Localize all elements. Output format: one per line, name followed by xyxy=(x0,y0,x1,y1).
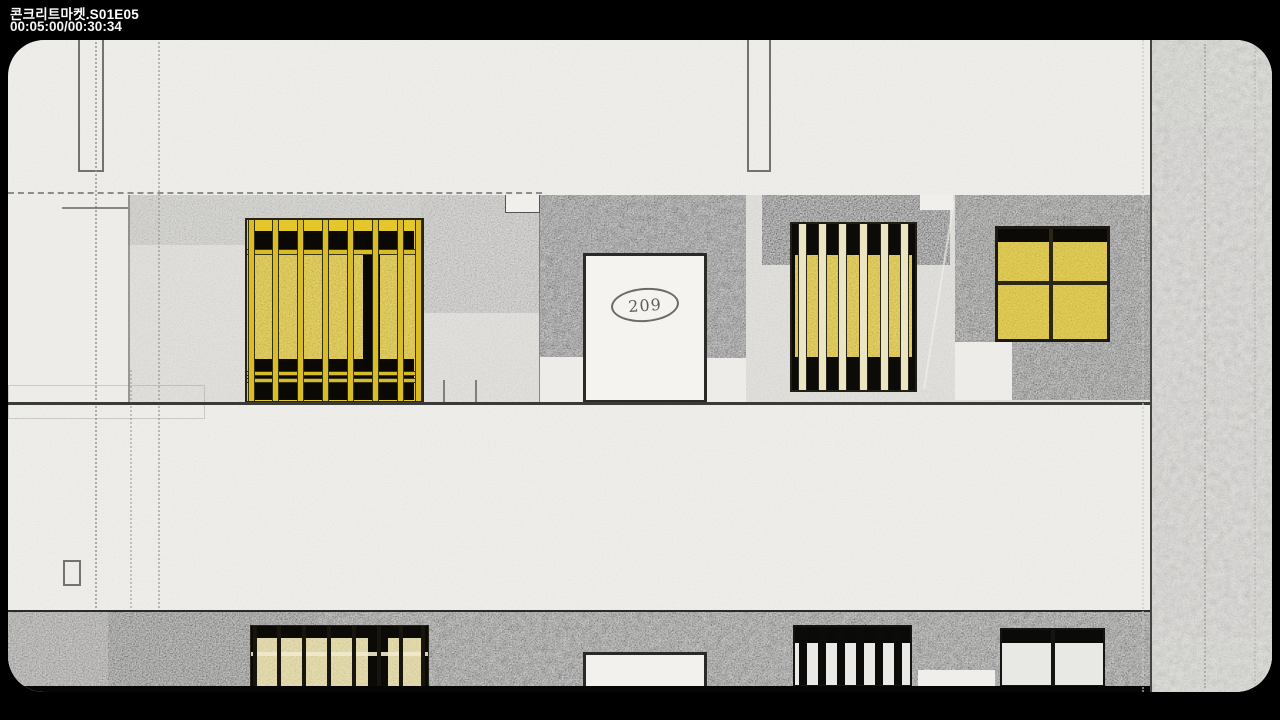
window-glow xyxy=(795,255,912,357)
window-bar xyxy=(272,220,279,401)
window-bar xyxy=(859,224,868,390)
lower-window-right-barred xyxy=(793,625,912,687)
wall-white-cutout xyxy=(540,357,583,403)
lower-wall-top-line xyxy=(8,610,1150,612)
wall-white-left xyxy=(8,195,128,403)
window-bar xyxy=(818,627,826,685)
window-texture xyxy=(795,255,912,357)
window-bar xyxy=(352,626,356,691)
seam-line xyxy=(128,195,130,403)
video-player: 콘크리트마켓.S01E05 00:05:00/00:30:34 xyxy=(0,0,1280,720)
wall-white-cutout xyxy=(955,342,1012,400)
window-bar xyxy=(399,626,403,691)
window-bar xyxy=(818,224,827,390)
stitch-line xyxy=(158,42,160,648)
window-bar xyxy=(421,626,425,691)
door-209: 209 xyxy=(583,253,707,403)
window-bar xyxy=(880,224,889,390)
window-left-barred xyxy=(245,218,424,403)
column-outline-center xyxy=(747,40,771,172)
window-mullion-v xyxy=(1051,630,1055,685)
window-bar xyxy=(837,627,845,685)
window-mullion-v xyxy=(1049,229,1053,339)
wall-notch xyxy=(505,195,540,213)
lower-window-paned xyxy=(1000,628,1105,687)
window-right-paned xyxy=(995,226,1110,342)
floor-line xyxy=(8,402,1150,405)
window-bar xyxy=(415,220,422,401)
step-line xyxy=(62,207,128,209)
strip-seam-line xyxy=(1150,40,1152,692)
window-bar xyxy=(347,220,354,401)
column-outline-left xyxy=(78,40,104,172)
window-bar xyxy=(322,220,329,401)
window-bar xyxy=(397,220,404,401)
stitch-line xyxy=(95,42,97,648)
video-timecode: 00:05:00/00:30:34 xyxy=(10,19,122,34)
stitch-line xyxy=(1142,40,1144,692)
window-bar xyxy=(875,627,883,685)
lower-black-strip xyxy=(8,686,1150,692)
concrete-texture xyxy=(8,612,108,692)
window-bar xyxy=(297,220,304,401)
window-bar xyxy=(856,627,864,685)
stitch-line xyxy=(1254,44,1256,688)
wall-notch xyxy=(920,195,953,210)
window-bar xyxy=(798,224,807,390)
dashed-guide-line xyxy=(8,192,542,194)
door-number-stamp: 209 xyxy=(610,286,680,325)
stitch-line xyxy=(1204,44,1206,688)
window-bar xyxy=(327,626,331,691)
door-number: 209 xyxy=(628,294,663,315)
lower-white-strip xyxy=(918,670,995,687)
wall-white-cutout xyxy=(705,358,746,403)
window-bar xyxy=(372,220,379,401)
window-bar xyxy=(799,627,807,685)
window-bar xyxy=(894,627,902,685)
video-frame[interactable]: 209 xyxy=(8,40,1272,692)
seam-stub xyxy=(443,380,445,402)
lower-wall-light-left xyxy=(8,612,108,692)
window-bar xyxy=(248,220,255,401)
seam-stub xyxy=(475,380,477,402)
column-base-outline xyxy=(63,560,81,586)
window-bar xyxy=(900,224,909,390)
window-bar xyxy=(838,224,847,390)
lower-window-left-barred xyxy=(250,625,429,692)
window-bar xyxy=(302,626,306,691)
window-bar xyxy=(277,626,281,691)
window-top-band xyxy=(795,627,910,643)
window-bar xyxy=(253,626,257,691)
window-center-barred xyxy=(790,222,917,392)
window-bar xyxy=(377,626,381,691)
